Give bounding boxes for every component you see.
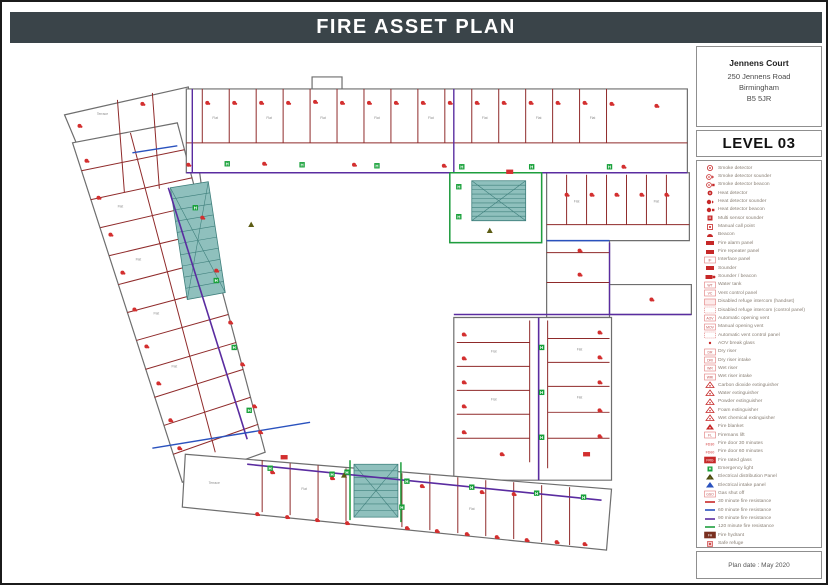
svg-text:Terrace: Terrace [97, 112, 108, 116]
tri-legend-icon [703, 381, 718, 389]
boxf-legend-icon: FRG [703, 456, 718, 464]
svg-text:FRG: FRG [706, 459, 714, 463]
boxt-legend-icon: GSO [703, 490, 718, 498]
legend-item: Powder extinguisher [703, 398, 821, 406]
legend-label: Smoke detector sounder [718, 174, 771, 179]
svg-text:Flat: Flat [320, 116, 326, 120]
svg-text:H: H [535, 491, 538, 496]
legend-item: Safe refuge [703, 539, 821, 547]
legend-item: Manual call point [703, 222, 821, 230]
legend-label: Disabled refuge intercom (handset) [718, 299, 794, 304]
floor-plan: HHHHHHHHHHHHHHHHHHHHHHHTerraceTerraceFla… [10, 43, 692, 580]
svg-text:Flat: Flat [577, 395, 583, 399]
legend-item: DRIDry riser intake [703, 356, 821, 364]
svg-text:AOV: AOV [706, 317, 714, 321]
plan-date-box: Plan date : May 2020 [696, 551, 822, 579]
legend-item: Beacon [703, 231, 821, 239]
title-bar: FIRE ASSET PLAN [10, 12, 822, 43]
trid-legend-icon: ! [703, 473, 718, 481]
legend-label: Smoke detector [718, 166, 752, 171]
svg-text:Flat: Flat [118, 205, 124, 209]
legend-label: 120 minute fire resistance [718, 524, 774, 529]
legend-item: Electrical intake panel [703, 481, 821, 489]
legend-label: Powder extinguisher [718, 399, 762, 404]
legend-label: Fire rated glass [718, 458, 752, 463]
boxt-legend-icon: DR [703, 348, 718, 356]
fire-asset-plan-page: FIRE ASSET PLAN HHHHHHHHHHHHHHHHHHHHHHHT… [0, 0, 828, 585]
legend-item: FRGFire rated glass [703, 456, 821, 464]
legend-label: Smoke detector beacon [718, 182, 770, 187]
svg-text:Flat: Flat [491, 397, 497, 401]
svg-text:Flat: Flat [577, 347, 583, 351]
legend-label: Emergency light [718, 466, 753, 471]
legend-item: Fire alarm panel [703, 239, 821, 247]
svg-text:Flat: Flat [482, 116, 488, 120]
tri-legend-icon [703, 398, 718, 406]
legend-item: FD30Fire door 30 minutes [703, 439, 821, 447]
sdet-b-legend-icon [703, 181, 718, 189]
legend-label: Sounder [718, 266, 737, 271]
level-label: LEVEL 03 [723, 135, 796, 152]
line-legend-icon [703, 523, 718, 531]
legend-label: Carbon dioxide extinguisher [718, 383, 779, 388]
legend-item: FLFiremans lift [703, 431, 821, 439]
legend-item: WRIWet riser intake [703, 373, 821, 381]
rectf-legend-icon [703, 248, 718, 256]
legend-label: AOV break glass [718, 341, 755, 346]
svg-text:H: H [269, 466, 272, 471]
legend-label: Electrical distribution Panel [718, 474, 777, 479]
legend-item: Foam extinguisher [703, 406, 821, 414]
legend-label: Fire repeater panel [718, 249, 759, 254]
legend-label: Automatic opening vent [718, 316, 769, 321]
legend-item: DRDry riser [703, 348, 821, 356]
line-legend-icon [703, 506, 718, 514]
tri-legend-icon [703, 389, 718, 397]
line-legend-icon [703, 515, 718, 523]
boxt-legend-icon: VC [703, 289, 718, 297]
svg-text:Flat: Flat [654, 200, 660, 204]
legend-item: Heat detector [703, 189, 821, 197]
svg-text:GSO: GSO [706, 492, 714, 496]
legend-label: Wet riser [718, 366, 737, 371]
boxt-legend-icon: IF [703, 256, 718, 264]
page-title: FIRE ASSET PLAN [316, 16, 516, 39]
building-name: Jennens Court [697, 58, 821, 68]
trib-legend-icon [703, 481, 718, 489]
svg-text:Flat: Flat [136, 258, 142, 262]
svg-text:Flat: Flat [469, 507, 475, 511]
txt-legend-icon: FD60 [703, 448, 718, 456]
svg-text:H: H [540, 435, 543, 440]
svg-text:H: H [400, 505, 403, 510]
legend-item: WRWet riser [703, 364, 821, 372]
legend-label: 90 minute fire resistance [718, 516, 771, 521]
txt-legend-icon: FD30 [703, 440, 718, 448]
svg-text:FL: FL [708, 433, 712, 437]
svg-text:H: H [215, 278, 218, 283]
legend-item: AOV break glass [703, 339, 821, 347]
boxt-legend-icon: FL [703, 431, 718, 439]
legend-item: 60 minute fire resistance [703, 506, 821, 514]
svg-text:Flat: Flat [154, 311, 160, 315]
boxf2-legend-icon: FH [703, 531, 718, 539]
legend-label: Beacon [718, 232, 735, 237]
legend-item: Sounder / beacon [703, 272, 821, 280]
svg-text:VC: VC [708, 292, 713, 296]
hdet-s-legend-icon [703, 198, 718, 206]
legend-label: Disabled refuge intercom (control panel) [718, 308, 805, 313]
address-line: 250 Jennens Road [697, 71, 821, 82]
svg-text:H: H [470, 485, 473, 490]
legend-item: Automatic vent control panel [703, 331, 821, 339]
svg-text:DR: DR [708, 350, 713, 354]
legend-item: GSOGas shut off [703, 489, 821, 497]
rectf-legend-icon [703, 239, 718, 247]
svg-text:MOV: MOV [706, 325, 714, 329]
legend-label: Sounder / beacon [718, 274, 757, 279]
legend-label: Interface panel [718, 257, 750, 262]
legend-item: 30 minute fire resistance [703, 498, 821, 506]
legend-label: Safe refuge [718, 541, 743, 546]
legend-item: Fire blanket [703, 423, 821, 431]
legend-label: Vent control panel [718, 291, 757, 296]
boxt-legend-icon: AOV [703, 314, 718, 322]
line-legend-icon [703, 498, 718, 506]
svg-text:H: H [709, 467, 712, 471]
legend-label: Gas shut off [718, 491, 744, 496]
hbox-legend-icon: H [703, 465, 718, 473]
legend-label: Fire blanket [718, 424, 744, 429]
floor-plan-area: HHHHHHHHHHHHHHHHHHHHHHHTerraceTerraceFla… [10, 43, 692, 580]
dot-legend-icon [703, 339, 718, 347]
boxd-legend-icon [703, 306, 718, 314]
legend-label: Electrical intake panel [718, 483, 766, 488]
legend-item: WTWater tank [703, 281, 821, 289]
legend-label: Firemans lift [718, 433, 745, 438]
svg-text:FD60: FD60 [706, 450, 715, 454]
svg-text:H: H [194, 205, 197, 210]
sqr-legend-icon [703, 540, 718, 548]
legend-item: AOVAutomatic opening vent [703, 314, 821, 322]
legend-item: IFInterface panel [703, 256, 821, 264]
tri-legend-icon [703, 414, 718, 422]
address-line: B5 5JR [697, 93, 821, 104]
hdet-b-legend-icon [703, 206, 718, 214]
svg-text:H: H [248, 408, 251, 413]
svg-text:H: H [457, 214, 460, 219]
boxt-legend-icon: WRI [703, 373, 718, 381]
svg-text:H: H [405, 479, 408, 484]
legend-item: Water extinguisher [703, 389, 821, 397]
svg-text:H: H [330, 472, 333, 477]
legend-label: Fire door 60 minutes [718, 449, 763, 454]
svg-text:Flat: Flat [374, 116, 380, 120]
boxt-legend-icon: WT [703, 281, 718, 289]
legend-label: 30 minute fire resistance [718, 499, 771, 504]
legend-item: 120 minute fire resistance [703, 523, 821, 531]
svg-text:H: H [457, 184, 460, 189]
boxd-legend-icon [703, 331, 718, 339]
svg-text:H: H [540, 390, 543, 395]
svg-text:WT: WT [707, 283, 712, 287]
legend-item: Wet chemical extinguisher [703, 414, 821, 422]
boxp-legend-icon [703, 298, 718, 306]
legend-item: Smoke detector beacon [703, 181, 821, 189]
legend-item: MOVManual opening vent [703, 323, 821, 331]
legend-item: Sounder [703, 264, 821, 272]
address-line: Birmingham [697, 82, 821, 93]
legend-item: Heat detector beacon [703, 206, 821, 214]
svg-text:Flat: Flat [491, 349, 497, 353]
legend-item: Heat detector sounder [703, 197, 821, 205]
svg-text:FH: FH [708, 534, 713, 538]
boxt-legend-icon: MOV [703, 323, 718, 331]
sqf-legend-icon: M [703, 214, 718, 222]
svg-text:H: H [460, 164, 463, 169]
rectc-legend-icon [703, 273, 718, 281]
legend-label: Heat detector sounder [718, 199, 766, 204]
legend-label: Water extinguisher [718, 391, 759, 396]
legend-label: 60 minute fire resistance [718, 508, 771, 513]
legend-label: Fire door 30 minutes [718, 441, 763, 446]
svg-text:WR: WR [707, 367, 713, 371]
legend-label: Foam extinguisher [718, 408, 758, 413]
plan-date: Plan date : May 2020 [728, 562, 789, 569]
legend-label: Heat detector [718, 191, 747, 196]
svg-text:Flat: Flat [590, 116, 596, 120]
legend-item: Smoke detector sounder [703, 172, 821, 180]
legend-label: Wet chemical extinguisher [718, 416, 775, 421]
legend-label: Dry riser [718, 349, 736, 354]
legend-label: Fire alarm panel [718, 241, 753, 246]
svg-text:H: H [540, 345, 543, 350]
legend-label: Manual opening vent [718, 324, 763, 329]
svg-text:IF: IF [708, 258, 711, 262]
svg-text:Flat: Flat [301, 487, 307, 491]
level-box: LEVEL 03 [696, 130, 822, 157]
svg-text:DRI: DRI [707, 358, 713, 362]
legend-label: Automatic vent control panel [718, 333, 780, 338]
legend-label: Multi sensor sounder [718, 216, 763, 221]
svg-text:Terrace: Terrace [209, 481, 220, 485]
legend-item: FD60Fire door 60 minutes [703, 448, 821, 456]
trif-legend-icon [703, 423, 718, 431]
legend-box: Smoke detectorSmoke detector sounderSmok… [696, 160, 822, 548]
legend-item: FHFire hydrant [703, 531, 821, 539]
svg-text:Flat: Flat [266, 116, 272, 120]
address-box: Jennens Court 250 Jennens Road Birmingha… [696, 46, 822, 127]
legend-item: !Electrical distribution Panel [703, 473, 821, 481]
hdet-legend-icon [703, 189, 718, 197]
svg-text:WRI: WRI [707, 375, 714, 379]
legend-item: Carbon dioxide extinguisher [703, 381, 821, 389]
legend-item: Disabled refuge intercom (control panel) [703, 306, 821, 314]
legend-label: Heat detector beacon [718, 207, 765, 212]
svg-text:H: H [608, 164, 611, 169]
legend-item: Disabled refuge intercom (handset) [703, 298, 821, 306]
tri-legend-icon [703, 406, 718, 414]
sdet-legend-icon [703, 164, 718, 172]
legend-label: Dry riser intake [718, 358, 751, 363]
legend-label: Manual call point [718, 224, 755, 229]
boxt-legend-icon: DRI [703, 356, 718, 364]
legend-item: Fire repeater panel [703, 247, 821, 255]
legend-item: Smoke detector [703, 164, 821, 172]
svg-text:H: H [530, 164, 533, 169]
legend-label: Water tank [718, 282, 741, 287]
svg-text:H: H [345, 470, 348, 475]
svg-text:M: M [709, 216, 712, 220]
svg-text:FD30: FD30 [706, 442, 715, 446]
legend-item: HEmergency light [703, 464, 821, 472]
rectf-legend-icon [703, 264, 718, 272]
legend-item: MMulti sensor sounder [703, 214, 821, 222]
svg-text:H: H [226, 161, 229, 166]
svg-text:Flat: Flat [212, 116, 218, 120]
sdet-s-legend-icon [703, 173, 718, 181]
svg-text:H: H [233, 345, 236, 350]
legend-label: Fire hydrant [718, 533, 744, 538]
svg-text:Flat: Flat [172, 364, 178, 368]
svg-text:H: H [301, 162, 304, 167]
svg-text:Flat: Flat [428, 116, 434, 120]
legend-label: Wet riser intake [718, 374, 752, 379]
sqo-legend-icon [703, 223, 718, 231]
svg-text:Flat: Flat [536, 116, 542, 120]
beacon-legend-icon [703, 231, 718, 239]
boxt-legend-icon: WR [703, 364, 718, 372]
svg-text:H: H [375, 163, 378, 168]
legend-item: 90 minute fire resistance [703, 514, 821, 522]
svg-text:H: H [582, 495, 585, 500]
svg-text:Flat: Flat [574, 200, 580, 204]
legend-item: VCVent control panel [703, 289, 821, 297]
